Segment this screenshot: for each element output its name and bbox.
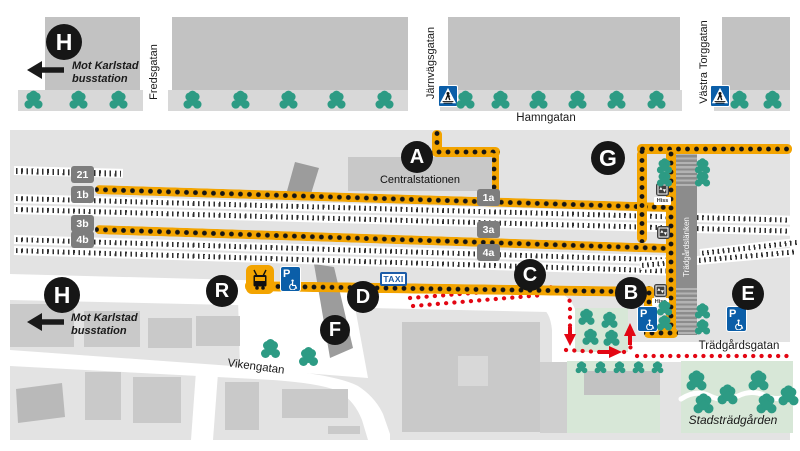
direction-note-bottom: Mot Karlstad busstation bbox=[71, 312, 138, 338]
walking-route bbox=[637, 144, 792, 154]
tree-icon bbox=[29, 97, 38, 106]
direction-note-top: Mot Karlstad busstation bbox=[72, 60, 139, 86]
tree-icon bbox=[612, 97, 621, 106]
tree-icon bbox=[698, 177, 705, 184]
elevator-icon bbox=[654, 284, 667, 297]
walking-route bbox=[637, 150, 647, 243]
accessible-parking-sign: P bbox=[726, 306, 747, 332]
stop-marker-h: H bbox=[46, 24, 82, 60]
direction-note-line2: busstation bbox=[72, 73, 139, 86]
platform-sign-1b: 1b bbox=[71, 186, 94, 203]
tree-icon bbox=[761, 401, 770, 410]
bus-icon bbox=[250, 269, 270, 290]
tree-icon bbox=[635, 366, 641, 372]
bus-stop-icon bbox=[246, 265, 274, 294]
tree-icon bbox=[660, 306, 667, 313]
tree-icon bbox=[578, 366, 584, 372]
direction-note-line1: Mot Karlstad bbox=[71, 312, 138, 325]
tree-icon bbox=[380, 97, 389, 106]
tree-icon bbox=[753, 378, 762, 387]
platform-sign-4a: 4a bbox=[477, 244, 500, 261]
tree-icon bbox=[735, 97, 744, 106]
accessible-parking-sign: P bbox=[637, 306, 658, 332]
tree-icon bbox=[607, 336, 615, 344]
tree-icon bbox=[284, 97, 293, 106]
tree-icon bbox=[304, 354, 313, 363]
tree-icon bbox=[236, 97, 245, 106]
tree-icon bbox=[573, 97, 582, 106]
tree-icon bbox=[266, 346, 275, 355]
tree-icon bbox=[605, 318, 613, 326]
tree-icon bbox=[582, 315, 590, 323]
tree-icon bbox=[698, 309, 705, 316]
direction-note-line2: busstation bbox=[71, 325, 138, 338]
platform-sign-21: 21 bbox=[71, 166, 94, 183]
tree-icon bbox=[461, 97, 470, 106]
tree-icon bbox=[534, 97, 543, 106]
crosswalk-sign bbox=[710, 85, 730, 107]
tree-icon bbox=[698, 325, 705, 332]
elevator-sign bbox=[656, 183, 669, 196]
tree-icon bbox=[114, 97, 123, 106]
wheelchair-icon bbox=[734, 319, 745, 330]
tree-icon bbox=[783, 393, 792, 402]
platform-sign-3b: 3b bbox=[71, 215, 94, 232]
tree-icon bbox=[597, 366, 603, 372]
stop-marker-a: A bbox=[401, 141, 433, 173]
stop-marker-f: F bbox=[320, 315, 350, 345]
tree-icon bbox=[616, 366, 622, 372]
stop-marker-b: B bbox=[615, 277, 647, 309]
crosswalk-sign bbox=[438, 85, 458, 107]
bridge-label: Trädgårdslänken bbox=[679, 207, 695, 287]
platform-sign-1a: 1a bbox=[477, 189, 500, 206]
station-area-map: Trädgårdslänken Centralstationen Fredsga… bbox=[0, 0, 800, 451]
bridge-stairs bbox=[676, 288, 697, 335]
tree-icon bbox=[660, 164, 667, 171]
accessible-parking-sign: P bbox=[280, 266, 301, 292]
elevator-sign bbox=[657, 226, 670, 239]
elevator-icon bbox=[656, 183, 669, 196]
tree-icon bbox=[691, 378, 700, 387]
pedestrian-crossing-icon bbox=[711, 86, 729, 106]
tree-icon bbox=[332, 97, 341, 106]
tree-icon bbox=[768, 97, 777, 106]
tree-icon bbox=[660, 321, 667, 328]
tree-icon bbox=[652, 97, 661, 106]
tree-icon bbox=[496, 97, 505, 106]
direction-note-line1: Mot Karlstad bbox=[72, 60, 139, 73]
stop-marker-g: G bbox=[591, 141, 625, 175]
wheelchair-icon bbox=[645, 319, 656, 330]
park-label-stadstradgarden: Stadsträdgården bbox=[673, 413, 793, 427]
tree-icon bbox=[586, 335, 594, 343]
stop-marker-r: R bbox=[206, 275, 238, 307]
tree-icon bbox=[654, 366, 660, 372]
elevator-icon bbox=[657, 226, 670, 239]
stop-marker-h: H bbox=[44, 277, 80, 313]
pedestrian-crossing-icon bbox=[439, 86, 457, 106]
tree-icon bbox=[74, 97, 83, 106]
tree-icon bbox=[698, 164, 705, 171]
platform-sign-3a: 3a bbox=[477, 221, 500, 238]
bridge-stairs bbox=[676, 153, 697, 187]
stop-marker-c: C bbox=[514, 259, 546, 291]
taxi-sign: TAXI bbox=[380, 272, 407, 286]
tree-icon bbox=[722, 392, 731, 401]
wheelchair-icon bbox=[288, 279, 299, 290]
elevator-sign-label: Hiss bbox=[654, 197, 671, 205]
tree-icon bbox=[188, 97, 197, 106]
tree-icon bbox=[660, 177, 667, 184]
elevator-sign bbox=[654, 284, 667, 297]
street-label-tradgardsgatan: Trädgårdsgatan bbox=[689, 340, 789, 352]
stop-marker-d: D bbox=[347, 281, 379, 313]
stop-marker-e: E bbox=[732, 278, 764, 310]
tree-icon bbox=[698, 401, 707, 410]
elevator-sign-label: Hiss bbox=[652, 298, 669, 306]
platform-sign-4b: 4b bbox=[71, 231, 94, 248]
centralstationen-label: Centralstationen bbox=[348, 174, 492, 186]
